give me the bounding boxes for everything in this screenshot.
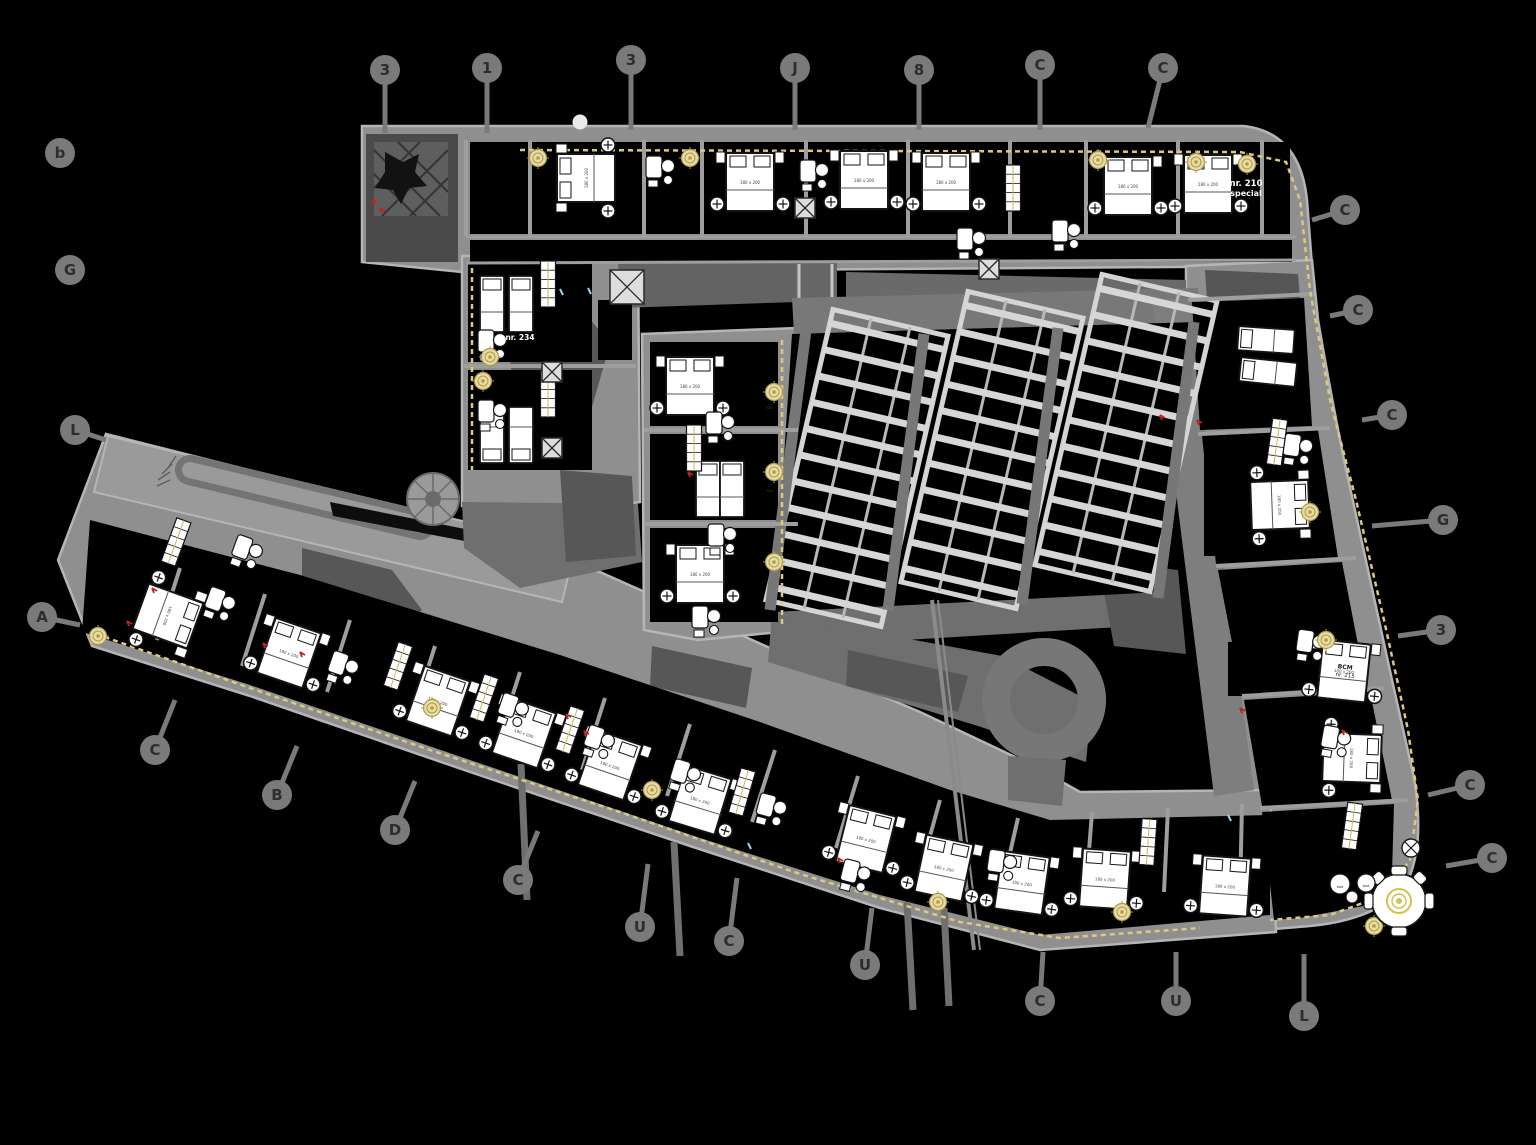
pillow bbox=[483, 279, 501, 290]
pillow bbox=[670, 360, 686, 371]
room-label: Bad bbox=[767, 489, 774, 493]
clutter bbox=[560, 470, 636, 562]
bathtub bbox=[706, 412, 722, 434]
rosette-core bbox=[772, 390, 776, 394]
single-bed bbox=[509, 276, 533, 332]
pillow bbox=[1028, 858, 1045, 871]
grid-bubble: b bbox=[45, 138, 75, 168]
pillow bbox=[1294, 484, 1306, 500]
pillow bbox=[1086, 852, 1103, 864]
bathtub bbox=[646, 156, 662, 178]
light-cross bbox=[1136, 899, 1137, 908]
grid-bubble-glyph: U bbox=[859, 956, 871, 974]
pillow bbox=[868, 154, 884, 165]
pillow bbox=[926, 156, 942, 167]
sink bbox=[975, 248, 984, 257]
pillow bbox=[950, 156, 966, 167]
grid-bubble-glyph: A bbox=[36, 608, 48, 626]
top-middle-corridor bbox=[618, 258, 797, 308]
vanity bbox=[1296, 653, 1307, 661]
toilet bbox=[494, 404, 507, 417]
toilet bbox=[662, 160, 675, 173]
pillow bbox=[680, 548, 696, 559]
rosette-core bbox=[1324, 638, 1328, 642]
sink bbox=[710, 626, 719, 635]
pillow bbox=[694, 360, 710, 371]
light-cross bbox=[1256, 906, 1257, 915]
grid-bubble-glyph: 3 bbox=[380, 61, 390, 79]
sink bbox=[496, 420, 505, 429]
toilet bbox=[816, 164, 829, 177]
grid-bubble-glyph: C bbox=[1157, 59, 1168, 77]
vanity bbox=[959, 252, 969, 259]
shaft-x-box bbox=[542, 438, 562, 458]
grid-bubble-glyph: D bbox=[389, 821, 401, 839]
rosette-core bbox=[1096, 158, 1100, 162]
rosette-core bbox=[1372, 924, 1376, 928]
floor-plan-drawing: 180 x 200180 x 200180 x 200180 x 200180 … bbox=[0, 0, 1536, 1145]
bed-size-label: 180 x 200 bbox=[1198, 182, 1219, 187]
nightstand bbox=[971, 152, 980, 163]
bathtub bbox=[1320, 725, 1340, 749]
spiral-stair bbox=[407, 473, 459, 525]
grid-bubble-glyph: G bbox=[64, 261, 76, 279]
toilet bbox=[708, 610, 721, 623]
mid-left-void bbox=[598, 300, 632, 360]
grid-bubble-glyph: L bbox=[70, 421, 80, 439]
vanity bbox=[648, 180, 658, 187]
pillow bbox=[512, 279, 530, 290]
grid-bubble-glyph: C bbox=[1486, 849, 1497, 867]
nightstand bbox=[1300, 529, 1311, 538]
nightstand bbox=[972, 844, 983, 857]
bathtub bbox=[987, 849, 1006, 873]
grid-bubble-glyph: J bbox=[791, 59, 798, 77]
rosette-core bbox=[1245, 162, 1249, 166]
vanity bbox=[987, 873, 998, 881]
grid-bubble-glyph: U bbox=[1170, 992, 1182, 1010]
right-wing-void bbox=[1228, 642, 1262, 696]
nightstand bbox=[1370, 784, 1381, 793]
vanity bbox=[1054, 244, 1064, 251]
vanity bbox=[1321, 749, 1332, 758]
service-block-hatched bbox=[366, 134, 458, 262]
bed-size-label: 180 x 200 bbox=[584, 167, 589, 188]
grid-bubble-glyph: 1 bbox=[482, 59, 492, 77]
room-label: bad bbox=[1337, 885, 1344, 889]
shaft-x-box bbox=[795, 198, 815, 218]
nightstand bbox=[1371, 644, 1381, 656]
rosette-core bbox=[1194, 160, 1198, 164]
rosette-core bbox=[772, 470, 776, 474]
sink bbox=[1003, 871, 1013, 881]
rosette-core bbox=[536, 156, 540, 160]
grid-bubble: G bbox=[55, 255, 85, 285]
pillow bbox=[483, 449, 501, 460]
shaft-x-box bbox=[542, 362, 562, 382]
nightstand bbox=[889, 150, 898, 161]
pillow bbox=[730, 156, 746, 167]
nightstand bbox=[895, 816, 906, 829]
nightstand bbox=[556, 144, 567, 153]
grid-bubble-glyph: C bbox=[512, 871, 523, 889]
pillow bbox=[1206, 859, 1223, 871]
grid-bubble-glyph: C bbox=[1352, 301, 1363, 319]
nightstand bbox=[1153, 156, 1162, 167]
toilet bbox=[973, 232, 986, 245]
grid-bubble-glyph: C bbox=[1464, 776, 1475, 794]
single-bed bbox=[480, 276, 504, 332]
grid-bubble-glyph: C bbox=[1339, 201, 1350, 219]
single-bed bbox=[720, 461, 744, 517]
bathtub bbox=[692, 606, 708, 628]
pillow bbox=[1110, 853, 1127, 865]
rosette-core bbox=[488, 355, 492, 359]
grid-bubble-glyph: U bbox=[634, 918, 646, 936]
nightstand bbox=[775, 152, 784, 163]
nightstand bbox=[715, 356, 724, 367]
sink bbox=[1312, 651, 1322, 661]
sink bbox=[1070, 240, 1079, 249]
nightstand bbox=[912, 152, 921, 163]
room-label: nr. 234 bbox=[505, 333, 534, 342]
vanity bbox=[480, 424, 490, 431]
nightstand bbox=[1251, 858, 1261, 870]
toilet bbox=[722, 416, 735, 429]
grid-bubble-glyph: C bbox=[1386, 406, 1397, 424]
rosette-core bbox=[772, 560, 776, 564]
bathtub bbox=[800, 160, 816, 182]
sink bbox=[726, 544, 735, 553]
room-label: Bad bbox=[767, 406, 774, 410]
pillow bbox=[1230, 860, 1247, 872]
rosette-core bbox=[481, 379, 485, 383]
top-wing-corridor bbox=[470, 240, 1292, 262]
rosette-core bbox=[1120, 910, 1124, 914]
grid-bubble-glyph: L bbox=[1299, 1007, 1309, 1025]
rosette-core bbox=[650, 788, 654, 792]
pillow bbox=[754, 156, 770, 167]
grid-bubble-glyph: 3 bbox=[626, 51, 636, 69]
single-bed bbox=[509, 407, 533, 463]
room-label: nr. 210 bbox=[1230, 179, 1263, 189]
nightstand bbox=[556, 203, 567, 212]
vanity bbox=[710, 548, 720, 555]
wardrobe bbox=[541, 261, 556, 307]
nightstand bbox=[716, 152, 725, 163]
bed-size-label: 180 x 200 bbox=[854, 178, 875, 183]
shaft-x-box bbox=[979, 259, 999, 279]
toilet bbox=[1068, 224, 1081, 237]
bed-size-label: 180 x 200 bbox=[1277, 495, 1283, 516]
single-bed bbox=[1237, 326, 1295, 354]
wardrobe bbox=[687, 425, 702, 471]
sink bbox=[818, 180, 827, 189]
bathtub bbox=[478, 400, 494, 422]
wardrobe bbox=[1006, 165, 1021, 211]
nightstand bbox=[838, 802, 849, 815]
bathtub bbox=[957, 228, 973, 250]
pillow bbox=[560, 182, 571, 198]
vanity bbox=[1283, 457, 1294, 465]
bed-size-label: 180 x 200 bbox=[690, 572, 711, 577]
grid-bubble-glyph: 3 bbox=[1436, 621, 1446, 639]
grid-bubble-glyph: B bbox=[271, 786, 282, 804]
grid-bubble-glyph: 8 bbox=[914, 61, 924, 79]
sink bbox=[664, 176, 673, 185]
nightstand bbox=[656, 356, 665, 367]
toilet bbox=[724, 528, 737, 541]
rosette-core bbox=[936, 900, 940, 904]
rosette-core bbox=[688, 156, 692, 160]
light-cross bbox=[1070, 894, 1071, 903]
bed-size-label: 180 x 200 bbox=[740, 180, 761, 185]
pillow bbox=[1350, 646, 1367, 659]
single-bed bbox=[1239, 357, 1297, 387]
grid-stub bbox=[944, 908, 949, 1006]
grid-bubble-glyph: C bbox=[723, 932, 734, 950]
pillow bbox=[1240, 329, 1252, 348]
nightstand bbox=[1072, 847, 1082, 859]
grid-bubble-glyph: G bbox=[1437, 511, 1449, 529]
nightstand bbox=[1049, 857, 1059, 869]
pillow bbox=[844, 154, 860, 165]
room-label: special bbox=[1230, 189, 1262, 198]
bed-size-label: 180 x 200 bbox=[936, 180, 957, 185]
vanity bbox=[708, 436, 718, 443]
sink bbox=[724, 432, 733, 441]
pillow bbox=[1366, 763, 1378, 779]
pillow bbox=[512, 449, 530, 460]
pillow bbox=[1108, 160, 1124, 171]
grid-bubble-glyph: C bbox=[1034, 992, 1045, 1010]
bed-size-label: 180 x 200 bbox=[1349, 748, 1355, 769]
sink bbox=[1299, 455, 1309, 465]
nightstand bbox=[915, 832, 926, 845]
pillow bbox=[1367, 739, 1379, 755]
floor-plan-stage: CAD hotel floor plan drawing bbox=[0, 0, 1536, 1145]
bathtub bbox=[1052, 220, 1068, 242]
pillow bbox=[560, 158, 571, 174]
vanity bbox=[694, 630, 704, 637]
pillow bbox=[723, 464, 741, 475]
pillow bbox=[1132, 160, 1148, 171]
nightstand bbox=[1298, 470, 1309, 479]
vanity bbox=[802, 184, 812, 191]
room-label: bad bbox=[1363, 884, 1370, 888]
shaft-x-box bbox=[610, 270, 644, 304]
grid-bubble-glyph: b bbox=[55, 144, 66, 162]
nightstand bbox=[1174, 154, 1183, 165]
rosette-core bbox=[1308, 510, 1312, 514]
rosette-core bbox=[96, 634, 100, 638]
bed-size-label: 180 x 200 bbox=[680, 384, 701, 389]
light-cross bbox=[1190, 901, 1191, 910]
bathtub bbox=[708, 524, 724, 546]
grid-bubble-glyph: C bbox=[149, 741, 160, 759]
bed-size-label: 180 x 200 bbox=[1118, 184, 1139, 189]
bathtub bbox=[1296, 629, 1315, 653]
wardrobe bbox=[1139, 819, 1157, 866]
rosette-core bbox=[430, 706, 434, 710]
pillow bbox=[1212, 158, 1228, 169]
grid-bubble-glyph: C bbox=[1034, 56, 1045, 74]
vertical-corridor bbox=[1008, 756, 1066, 806]
nightstand bbox=[666, 544, 675, 555]
white-dot-marker bbox=[573, 115, 588, 130]
nightstand bbox=[830, 150, 839, 161]
nightstand bbox=[1192, 854, 1202, 866]
pillow bbox=[1242, 360, 1255, 379]
nightstand bbox=[1372, 725, 1383, 734]
